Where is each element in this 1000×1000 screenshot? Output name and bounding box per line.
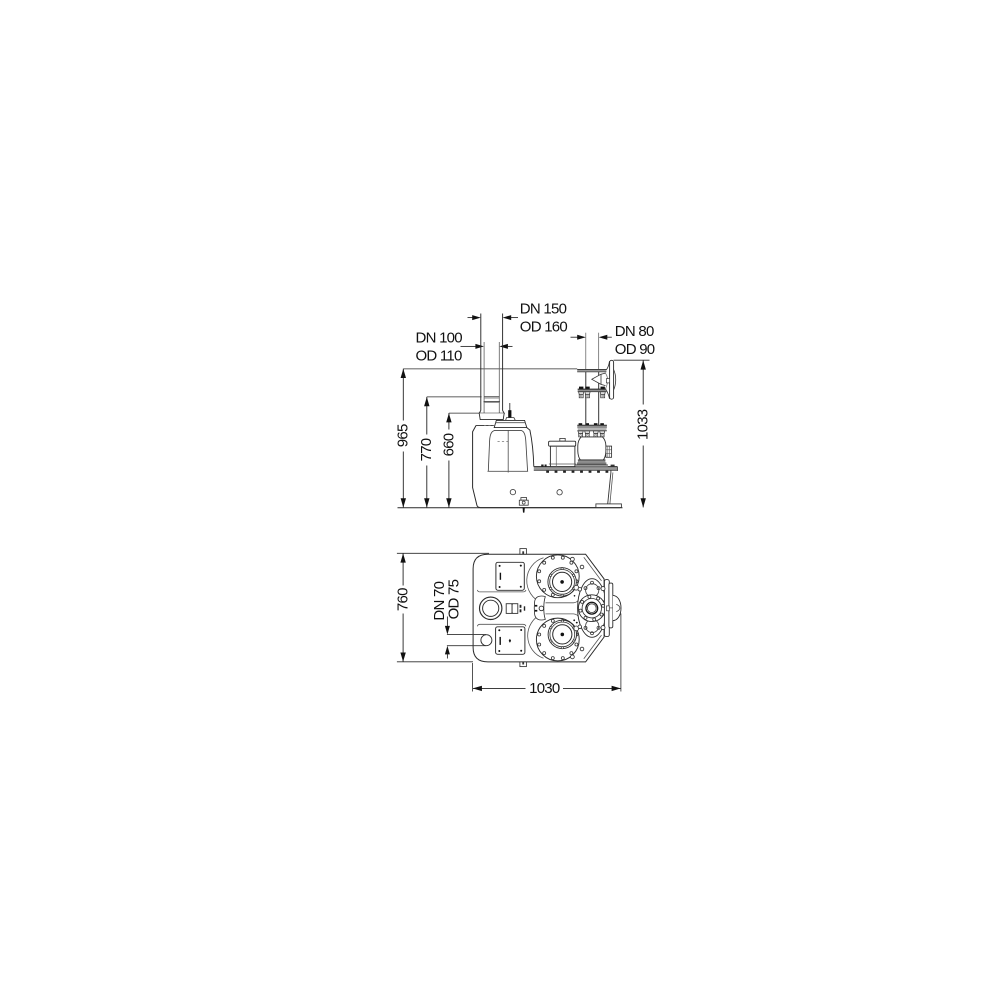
svg-text:1033: 1033 [635, 409, 652, 440]
svg-text:660: 660 [440, 433, 457, 456]
svg-text:DN 80: DN 80 [615, 323, 654, 340]
svg-text:OD 75: OD 75 [446, 579, 463, 619]
svg-text:1030: 1030 [529, 680, 560, 697]
svg-text:DN 100: DN 100 [416, 329, 463, 346]
svg-text:OD 160: OD 160 [520, 318, 568, 335]
svg-text:965: 965 [395, 424, 412, 447]
svg-text:770: 770 [418, 438, 435, 461]
svg-text:OD 90: OD 90 [615, 341, 655, 358]
svg-text:DN 150: DN 150 [520, 300, 567, 317]
svg-text:OD 110: OD 110 [416, 347, 462, 364]
svg-text:760: 760 [395, 588, 412, 611]
